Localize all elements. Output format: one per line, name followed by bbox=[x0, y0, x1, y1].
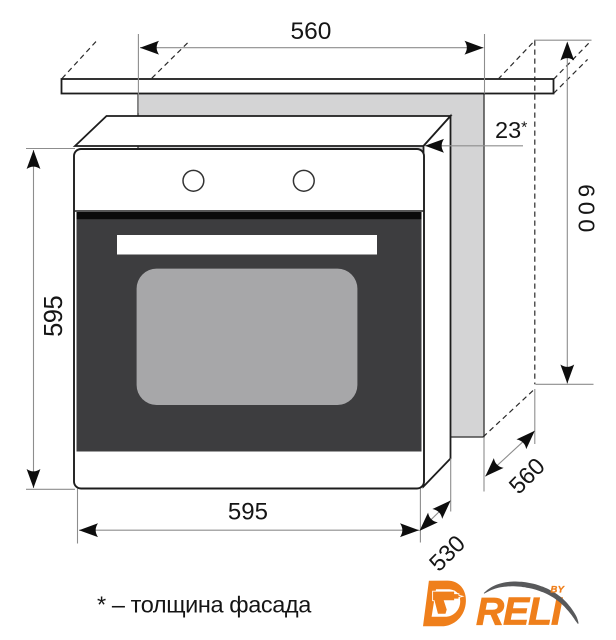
svg-text:BY: BY bbox=[551, 584, 566, 595]
svg-text:RELI: RELI bbox=[476, 591, 563, 634]
svg-text:* – толщина фасада: * – толщина фасада bbox=[97, 592, 312, 618]
svg-text:595: 595 bbox=[40, 296, 68, 337]
svg-text:560: 560 bbox=[291, 18, 332, 45]
svg-text:595: 595 bbox=[228, 499, 268, 526]
svg-text:600: 600 bbox=[574, 184, 600, 237]
